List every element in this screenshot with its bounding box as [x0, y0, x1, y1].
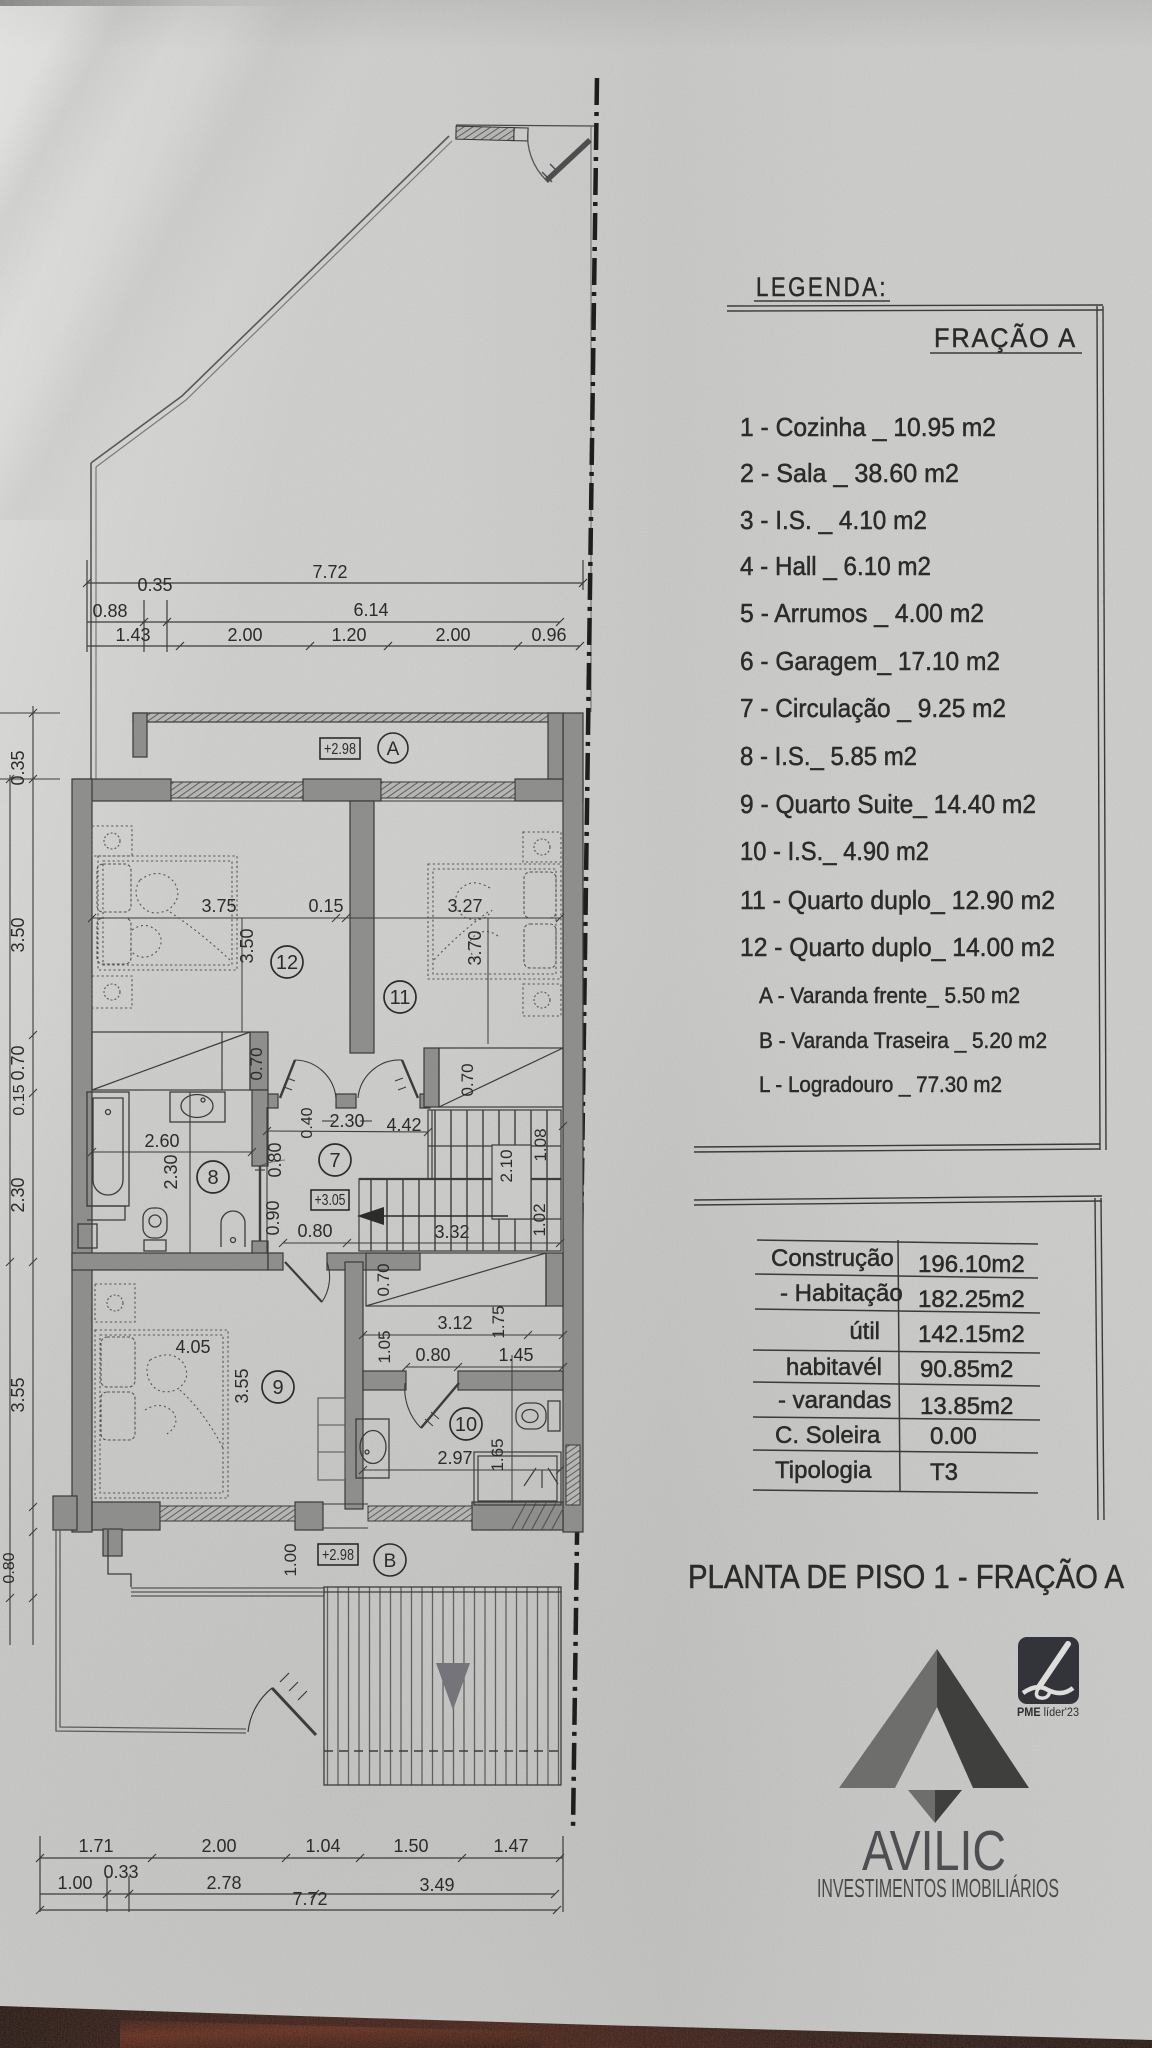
svg-text:T3: T3 — [930, 1459, 958, 1486]
svg-text:1.02: 1.02 — [530, 1203, 549, 1236]
svg-text:10 - I.S._ 4.90 m2: 10 - I.S._ 4.90 m2 — [740, 836, 929, 866]
svg-text:- Habitação: - Habitação — [780, 1280, 903, 1307]
svg-text:útil: útil — [849, 1318, 880, 1345]
svg-text:0.70: 0.70 — [458, 1063, 477, 1096]
svg-text:1.00: 1.00 — [57, 1873, 92, 1893]
svg-text:2.30: 2.30 — [8, 1177, 28, 1212]
svg-text:0.40: 0.40 — [299, 1107, 316, 1138]
svg-text:3.12: 3.12 — [437, 1313, 472, 1333]
svg-text:0.15: 0.15 — [11, 1084, 28, 1115]
svg-text:L - Logradouro _ 77.30 m2: L - Logradouro _ 77.30 m2 — [759, 1072, 1002, 1097]
svg-text:8 - I.S._ 5.85 m2: 8 - I.S._ 5.85 m2 — [740, 741, 917, 771]
svg-text:2.00: 2.00 — [201, 1836, 236, 1856]
svg-text:4.05: 4.05 — [175, 1337, 210, 1357]
svg-text:B: B — [384, 1551, 397, 1572]
svg-text:+3.05: +3.05 — [315, 1192, 346, 1209]
svg-text:2.10: 2.10 — [497, 1149, 516, 1182]
svg-text:1.71: 1.71 — [78, 1836, 113, 1856]
svg-text:3.75: 3.75 — [201, 896, 236, 916]
svg-text:1.04: 1.04 — [305, 1836, 340, 1856]
svg-text:0.00: 0.00 — [930, 1423, 977, 1450]
svg-text:1.65: 1.65 — [488, 1438, 507, 1471]
svg-text:0.35: 0.35 — [8, 750, 28, 785]
svg-text:9: 9 — [272, 1377, 283, 1399]
svg-text:5 - Arrumos _ 4.00 m2: 5 - Arrumos _ 4.00 m2 — [740, 598, 984, 628]
svg-text:1.75: 1.75 — [489, 1305, 508, 1338]
svg-text:7: 7 — [329, 1150, 340, 1172]
svg-text:1.00: 1.00 — [281, 1543, 300, 1576]
svg-text:0.15: 0.15 — [308, 896, 343, 916]
svg-text:7.72: 7.72 — [312, 562, 347, 582]
svg-text:12: 12 — [276, 952, 298, 974]
svg-text:6.14: 6.14 — [353, 600, 388, 620]
svg-text:0.80: 0.80 — [265, 1142, 285, 1177]
svg-text:1.50: 1.50 — [393, 1836, 428, 1856]
svg-text:0.96: 0.96 — [531, 625, 566, 645]
svg-text:90.85m2: 90.85m2 — [920, 1356, 1013, 1383]
svg-text:3.50: 3.50 — [237, 928, 257, 963]
svg-text:habitavél: habitavél — [786, 1354, 882, 1381]
svg-text:0.70: 0.70 — [247, 1047, 266, 1080]
svg-text:1.45: 1.45 — [498, 1345, 533, 1365]
svg-text:0.70: 0.70 — [8, 1045, 28, 1080]
svg-text:1.43: 1.43 — [115, 625, 150, 645]
svg-text:2.60: 2.60 — [144, 1131, 179, 1151]
svg-text:12 - Quarto duplo_ 14.00 m2: 12 - Quarto duplo_ 14.00 m2 — [740, 932, 1055, 962]
svg-text:+2.98: +2.98 — [322, 1547, 354, 1564]
svg-text:INVESTIMENTOS IMOBILIÁRIOS: INVESTIMENTOS IMOBILIÁRIOS — [817, 1873, 1059, 1903]
svg-text:4 - Hall _ 6.10 m2: 4 - Hall _ 6.10 m2 — [740, 551, 931, 581]
svg-text:LEGENDA:: LEGENDA: — [756, 272, 888, 302]
svg-text:A: A — [387, 739, 400, 760]
svg-text:2.30: 2.30 — [161, 1154, 181, 1189]
svg-text:2.30: 2.30 — [329, 1111, 364, 1131]
svg-text:1.05: 1.05 — [375, 1330, 394, 1363]
svg-text:3.50: 3.50 — [8, 917, 28, 952]
svg-text:3.49: 3.49 — [419, 1875, 454, 1895]
svg-text:9 - Quarto Suite_ 14.40 m2: 9 - Quarto Suite_ 14.40 m2 — [740, 789, 1036, 819]
svg-text:PME líder'23: PME líder'23 — [1017, 1707, 1079, 1719]
svg-text:PLANTA DE PISO 1 - FRAÇÃO A: PLANTA DE PISO 1 - FRAÇÃO A — [688, 1558, 1124, 1595]
svg-text:182.25m2: 182.25m2 — [918, 1286, 1025, 1313]
svg-text:0.90: 0.90 — [263, 1200, 283, 1235]
svg-text:1 - Cozinha _ 10.95 m2: 1 - Cozinha _ 10.95 m2 — [740, 412, 996, 442]
svg-text:6 - Garagem_ 17.10 m2: 6 - Garagem_ 17.10 m2 — [740, 646, 1000, 676]
svg-text:3.27: 3.27 — [447, 896, 482, 916]
svg-text:3.55: 3.55 — [8, 1377, 28, 1412]
svg-text:2.00: 2.00 — [435, 625, 470, 645]
svg-text:7.72: 7.72 — [292, 1889, 327, 1909]
svg-text:1.08: 1.08 — [531, 1128, 550, 1161]
svg-text:Construção: Construção — [771, 1245, 894, 1272]
svg-text:0.80: 0.80 — [1, 1552, 18, 1583]
svg-text:142.15m2: 142.15m2 — [918, 1321, 1025, 1348]
svg-text:+2.98: +2.98 — [324, 741, 356, 758]
svg-text:Tipologia: Tipologia — [775, 1457, 872, 1484]
svg-text:3.70: 3.70 — [465, 930, 485, 965]
svg-text:1.47: 1.47 — [493, 1836, 528, 1856]
svg-text:- varandas: - varandas — [778, 1387, 891, 1414]
svg-text:1.20: 1.20 — [331, 625, 366, 645]
svg-text:196.10m2: 196.10m2 — [918, 1251, 1025, 1278]
svg-text:0.70: 0.70 — [374, 1263, 393, 1296]
svg-text:0.80: 0.80 — [297, 1221, 332, 1241]
svg-text:A - Varanda frente_ 5.50 m2: A - Varanda frente_ 5.50 m2 — [759, 983, 1020, 1008]
svg-text:3.55: 3.55 — [232, 1368, 252, 1403]
svg-text:2 - Sala _ 38.60 m2: 2 - Sala _ 38.60 m2 — [740, 458, 959, 488]
svg-text:8: 8 — [207, 1167, 218, 1189]
svg-text:0.35: 0.35 — [137, 575, 172, 595]
svg-text:0.88: 0.88 — [92, 601, 127, 621]
svg-text:10: 10 — [455, 1414, 477, 1436]
svg-text:C. Soleira: C. Soleira — [775, 1422, 881, 1449]
svg-text:0.33: 0.33 — [103, 1862, 138, 1882]
svg-text:11 - Quarto duplo_ 12.90 m2: 11 - Quarto duplo_ 12.90 m2 — [740, 885, 1055, 915]
svg-text:B - Varanda Traseira _ 5.20 m2: B - Varanda Traseira _ 5.20 m2 — [759, 1028, 1047, 1053]
svg-text:3 - I.S. _ 4.10 m2: 3 - I.S. _ 4.10 m2 — [740, 505, 927, 535]
svg-text:0.80: 0.80 — [415, 1345, 450, 1365]
svg-text:4.42: 4.42 — [386, 1115, 421, 1135]
svg-text:11: 11 — [390, 987, 411, 1009]
svg-text:FRAÇÃO A: FRAÇÃO A — [934, 322, 1077, 353]
svg-text:2.78: 2.78 — [206, 1873, 241, 1893]
svg-text:2.00: 2.00 — [227, 625, 262, 645]
svg-text:7 - Circulação _ 9.25 m2: 7 - Circulação _ 9.25 m2 — [740, 693, 1006, 723]
svg-text:2.97: 2.97 — [437, 1448, 472, 1468]
svg-text:13.85m2: 13.85m2 — [920, 1393, 1013, 1420]
